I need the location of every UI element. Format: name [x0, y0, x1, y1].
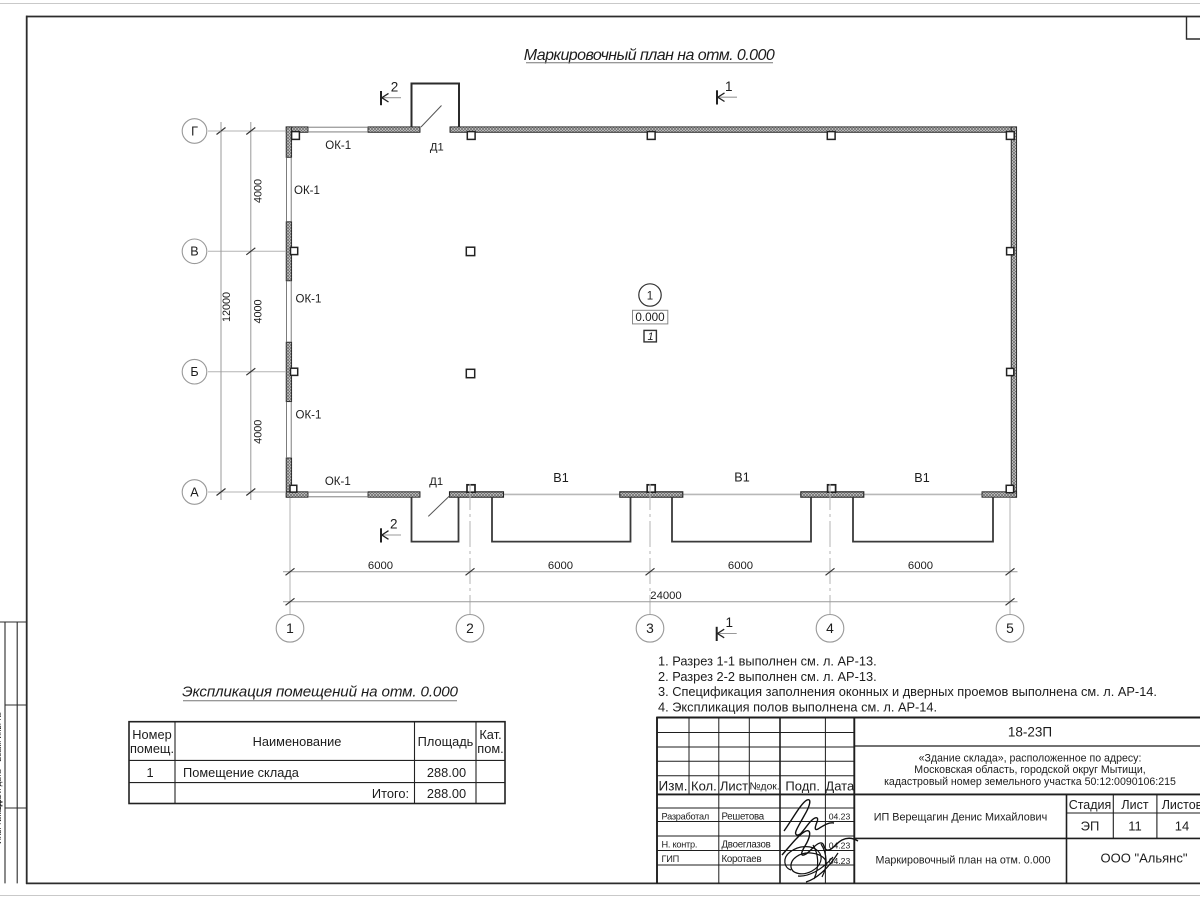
svg-text:5: 5 — [1006, 621, 1014, 636]
svg-text:Б: Б — [190, 365, 198, 379]
svg-text:Двоеглазов: Двоеглазов — [722, 840, 771, 851]
svg-text:А: А — [190, 485, 199, 499]
svg-text:ИП Верещагин Денис Михайлович: ИП Верещагин Денис Михайлович — [874, 812, 1047, 824]
svg-text:4000: 4000 — [253, 420, 265, 444]
svg-text:3: 3 — [646, 621, 654, 636]
svg-text:ЭП: ЭП — [1081, 819, 1100, 834]
svg-text:Д1: Д1 — [429, 476, 443, 488]
svg-text:Листов: Листов — [1162, 798, 1200, 812]
svg-text:Площадь: Площадь — [418, 734, 474, 749]
svg-text:помещ.: помещ. — [130, 741, 174, 756]
svg-text:2: 2 — [466, 621, 474, 636]
svg-text:18-23П: 18-23П — [1008, 725, 1052, 740]
svg-text:В1: В1 — [734, 471, 749, 485]
svg-text:2: 2 — [390, 517, 398, 532]
svg-text:288.00: 288.00 — [427, 786, 466, 801]
svg-text:Взам. инв. №: Взам. инв. № — [0, 712, 3, 762]
svg-text:пом.: пом. — [477, 741, 503, 756]
svg-text:Дата: Дата — [825, 778, 855, 793]
svg-text:Подп.: Подп. — [785, 778, 820, 793]
svg-text:4: 4 — [826, 621, 834, 636]
svg-text:3. Спецификация заполнения око: 3. Спецификация заполнения оконных и две… — [658, 684, 1157, 699]
svg-text:Коротаев: Коротаев — [722, 854, 762, 865]
svg-text:Лист: Лист — [720, 778, 748, 793]
svg-text:Д1: Д1 — [430, 141, 444, 153]
svg-text:1: 1 — [647, 331, 653, 343]
svg-text:кадастровый номер земельного у: кадастровый номер земельного участка 50:… — [884, 776, 1176, 788]
svg-text:14: 14 — [1175, 819, 1189, 834]
svg-text:ОК-1: ОК-1 — [325, 140, 351, 152]
svg-text:В: В — [190, 245, 198, 259]
svg-text:Решетова: Решетова — [722, 811, 765, 822]
svg-text:11: 11 — [1128, 819, 1142, 834]
svg-text:6000: 6000 — [728, 560, 753, 572]
svg-text:Наименование: Наименование — [253, 734, 342, 749]
svg-text:Н. контр.: Н. контр. — [662, 840, 698, 850]
svg-text:2. Разрез 2-2 выполнен см. л.: 2. Разрез 2-2 выполнен см. л. АР-13. — [658, 669, 877, 684]
svg-text:Кол.: Кол. — [691, 778, 717, 793]
svg-text:ОК-1: ОК-1 — [325, 476, 351, 488]
svg-text:1: 1 — [146, 765, 153, 780]
svg-text:6000: 6000 — [908, 560, 933, 572]
svg-text:Г: Г — [191, 124, 198, 138]
svg-text:№док.: №док. — [750, 782, 780, 793]
svg-text:Изм.: Изм. — [659, 778, 688, 793]
svg-text:1: 1 — [726, 615, 734, 630]
svg-text:1: 1 — [725, 79, 733, 94]
svg-text:4000: 4000 — [253, 179, 265, 203]
svg-text:Маркировочный план на отм. 0.0: Маркировочный план на отм. 0.000 — [524, 47, 775, 64]
svg-text:Лист: Лист — [1121, 798, 1148, 812]
svg-text:«Здание склада», расположенное: «Здание склада», расположенное по адресу… — [919, 753, 1142, 765]
svg-text:4000: 4000 — [253, 299, 265, 323]
svg-text:ОК-1: ОК-1 — [294, 185, 320, 197]
svg-text:288.00: 288.00 — [427, 765, 466, 780]
svg-text:В1: В1 — [553, 471, 568, 485]
svg-text:Помещение склада: Помещение склада — [183, 765, 300, 780]
svg-text:12000: 12000 — [221, 292, 233, 322]
svg-text:1. Разрез 1-1 выполнен см. л.: 1. Разрез 1-1 выполнен см. л. АР-13. — [658, 654, 877, 669]
svg-text:Маркировочный план на отм. 0.0: Маркировочный план на отм. 0.000 — [875, 855, 1050, 867]
svg-text:1: 1 — [647, 290, 653, 302]
svg-text:В1: В1 — [914, 471, 929, 485]
svg-text:Итого:: Итого: — [372, 786, 409, 801]
svg-text:2: 2 — [391, 79, 399, 94]
svg-text:24000: 24000 — [650, 590, 681, 602]
svg-text:Стадия: Стадия — [1069, 798, 1112, 812]
svg-text:6000: 6000 — [368, 560, 393, 572]
svg-text:ГИП: ГИП — [662, 854, 679, 864]
svg-text:4. Экспликация полов выполнена: 4. Экспликация полов выполнена см. л. АР… — [658, 699, 937, 714]
svg-text:ООО "Альянс": ООО "Альянс" — [1101, 851, 1188, 866]
svg-text:Кат.: Кат. — [479, 727, 501, 742]
svg-text:0.000: 0.000 — [635, 311, 665, 324]
svg-text:ОК-1: ОК-1 — [296, 294, 322, 306]
svg-text:Номер: Номер — [132, 727, 171, 742]
svg-text:Экспликация помещений на отм.: Экспликация помещений на отм. 0.000 — [182, 684, 458, 701]
svg-text:6000: 6000 — [548, 560, 573, 572]
svg-text:Инв. № подл.: Инв. № подл. — [0, 794, 3, 844]
svg-text:1: 1 — [286, 621, 294, 636]
svg-text:04.23: 04.23 — [829, 811, 851, 821]
svg-text:Разработал: Разработал — [662, 811, 710, 821]
svg-text:ОК-1: ОК-1 — [296, 410, 322, 422]
svg-text:Московская область, городской: Московская область, городской округ Мыти… — [914, 764, 1145, 776]
